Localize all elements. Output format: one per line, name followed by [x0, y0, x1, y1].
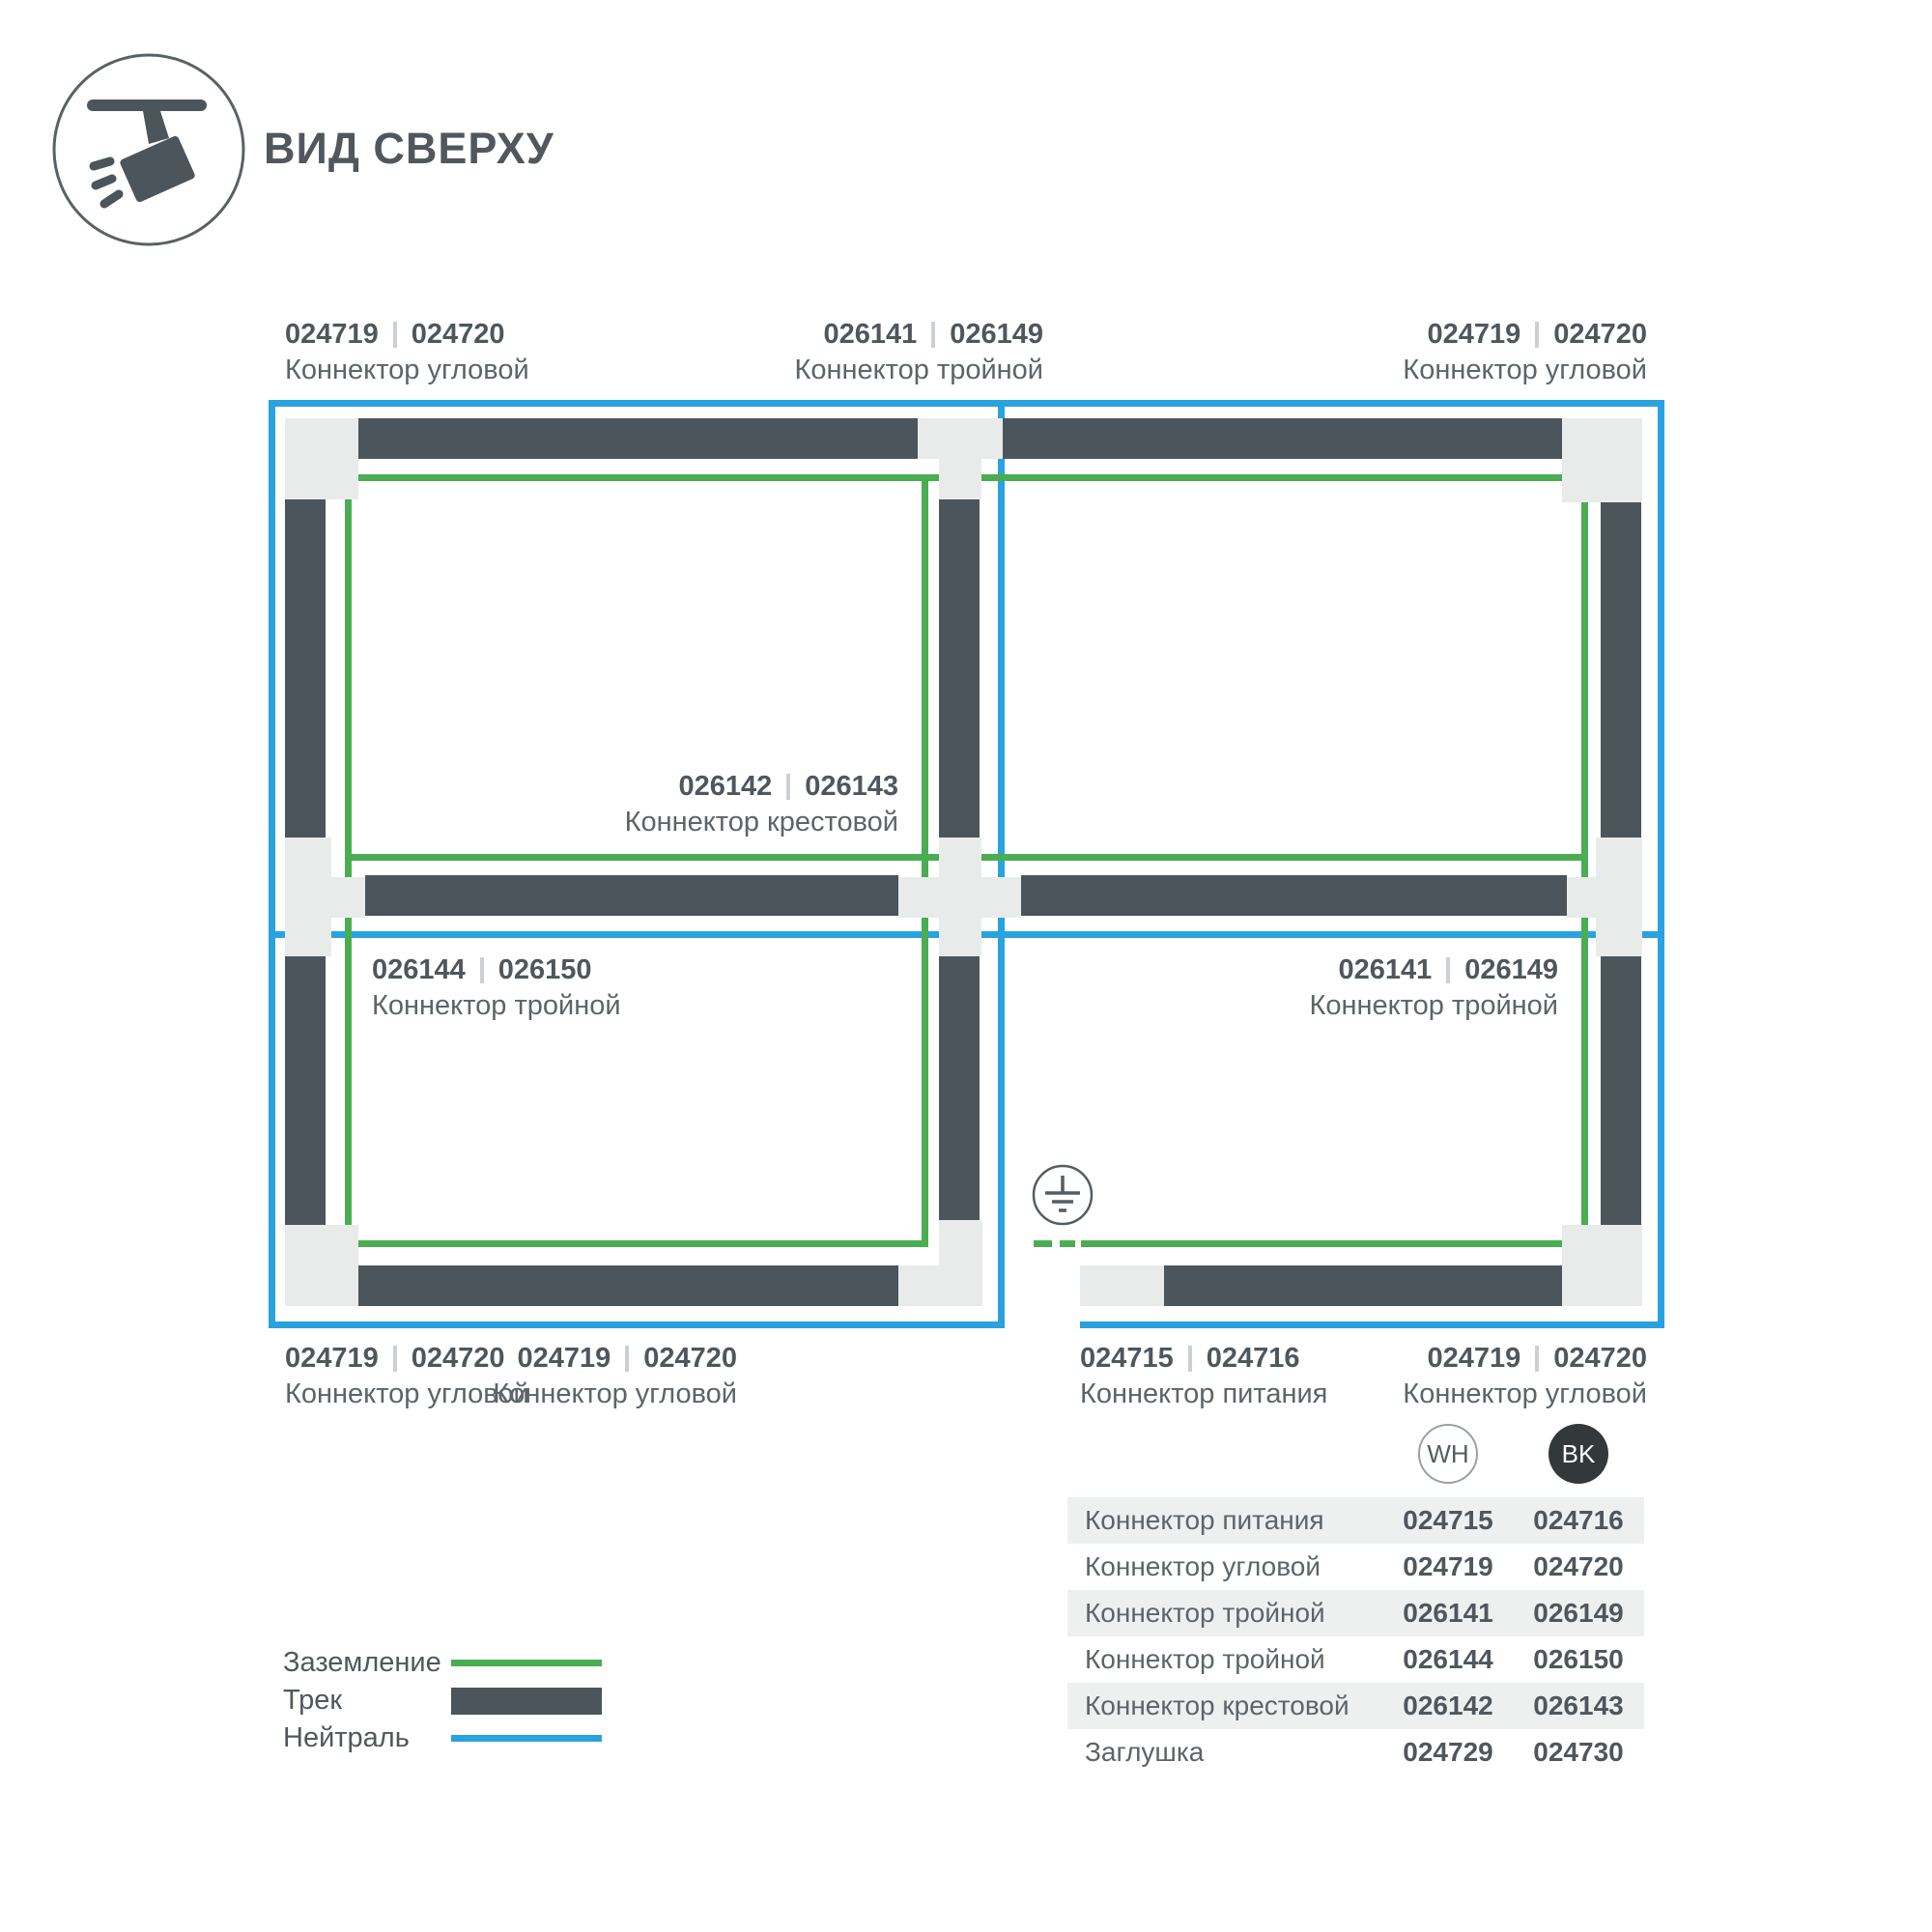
corner-connector-bottom-middle [939, 1220, 982, 1306]
ground-line-swatch [451, 1660, 602, 1666]
cross-connector-center [898, 877, 1021, 918]
track-segment [1021, 875, 1567, 916]
white-variant-badge: WH [1418, 1424, 1478, 1484]
divider [480, 957, 484, 983]
label-cross-connector-center: 026142026143 Коннектор крестовой [625, 771, 898, 838]
divider [1535, 1346, 1539, 1372]
earth-ground-icon [1031, 1163, 1094, 1227]
power-connector-block [1080, 1265, 1164, 1306]
ground-line-right [1581, 474, 1588, 1247]
legend-item-neutral: Нейтраль [283, 1719, 602, 1757]
legend: Заземление Трек Нейтраль [283, 1644, 602, 1757]
track-segment [1164, 1265, 1562, 1306]
page: ВИД СВЕРХУ [0, 0, 1932, 1932]
label-tee-connector-mid-right: 026141026149 Коннектор тройной [1309, 954, 1558, 1022]
divider [931, 322, 935, 348]
neutral-line-top [269, 400, 1664, 407]
track-segment [1601, 956, 1641, 1225]
neutral-line-left [269, 400, 275, 1328]
ground-line-bottom-right [1081, 1240, 1588, 1247]
legend-item-ground: Заземление [283, 1644, 602, 1682]
divider [393, 1346, 397, 1372]
ground-line-left [345, 474, 352, 1247]
track-segment [285, 956, 326, 1225]
tee-connector-mid-left [285, 877, 365, 918]
divider [1446, 957, 1450, 983]
track-spotlight-icon [50, 51, 247, 248]
corner-connector-top-left [285, 418, 358, 499]
ground-line-bottom-left [345, 1240, 928, 1247]
neutral-line-right [1658, 400, 1664, 1328]
corner-connector-top-right [1562, 418, 1642, 502]
divider [625, 1346, 629, 1372]
label-tee-connector-mid-left: 026144026150 Коннектор тройной [372, 954, 621, 1022]
track-segment [285, 499, 326, 838]
track-segment [1003, 418, 1562, 459]
table-row: Коннектор тройной 026144 026150 [1067, 1636, 1644, 1683]
parts-table: Коннектор питания 024715 024716 Коннекто… [1067, 1497, 1644, 1776]
table-row: Коннектор угловой 024719 024720 [1067, 1544, 1644, 1590]
legend-item-track: Трек [283, 1682, 602, 1719]
divider [1535, 322, 1539, 348]
corner-connector-bottom-right [1562, 1225, 1642, 1306]
table-row: Коннектор тройной 026141 026149 [1067, 1590, 1644, 1636]
label-power-connector: 024715024716 Коннектор питания [1080, 1343, 1327, 1410]
neutral-line-bottom-left [269, 1321, 1005, 1328]
divider [786, 774, 790, 800]
corner-connector-bottom-left [285, 1225, 358, 1306]
track-segment [365, 875, 898, 916]
track-swatch [451, 1688, 602, 1715]
ground-line-center [922, 474, 928, 1247]
table-row: Коннектор крестовой 026142 026143 [1067, 1683, 1644, 1729]
label-tee-connector-top-center: 026141026149 Коннектор тройной [794, 319, 1043, 386]
track-segment [939, 956, 980, 1220]
track-segment [1601, 502, 1641, 838]
table-row: Коннектор питания 024715 024716 [1067, 1497, 1644, 1544]
neutral-line-center [998, 400, 1005, 1328]
table-row: Заглушка 024729 024730 [1067, 1729, 1644, 1776]
ground-dash-2 [1060, 1240, 1075, 1247]
neutral-line-swatch [451, 1735, 602, 1742]
divider [1188, 1346, 1192, 1372]
tee-connector-mid-right [1567, 877, 1642, 918]
track-segment [358, 418, 918, 459]
label-corner-connector-top-right: 024719024720 Коннектор угловой [1403, 319, 1647, 386]
page-title: ВИД СВЕРХУ [264, 124, 554, 174]
track-segment [939, 499, 980, 838]
black-variant-badge: BK [1548, 1424, 1608, 1484]
divider [393, 322, 397, 348]
label-corner-connector-bottom-right: 024719024720 Коннектор угловой [1403, 1343, 1647, 1410]
neutral-line-bottom-right [1080, 1321, 1664, 1328]
tee-connector-top-center [939, 418, 981, 499]
track-segment [358, 1265, 898, 1306]
label-corner-connector-bottom-middle: 024719024720 Коннектор угловой [493, 1343, 737, 1410]
label-corner-connector-top-left: 024719024720 Коннектор угловой [285, 319, 529, 386]
ground-dash-1 [1034, 1240, 1052, 1247]
